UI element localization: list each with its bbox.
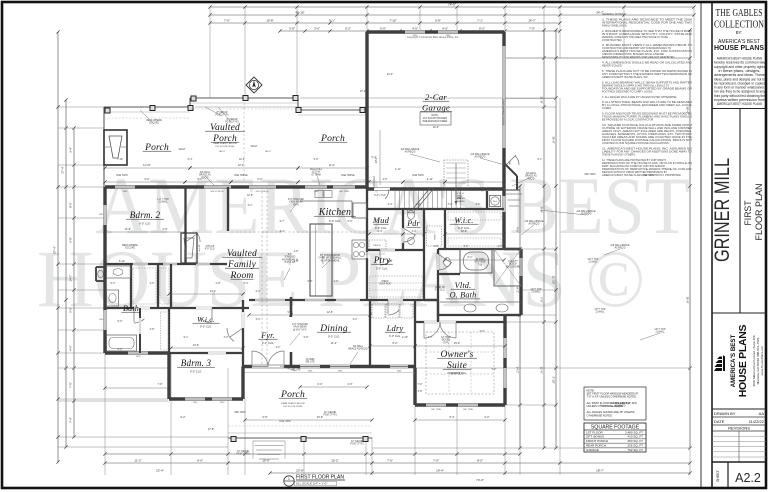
svg-text:6'-0": 6'-0" — [308, 280, 313, 283]
svg-text:5/4 WALL: 5/4 WALL — [353, 345, 364, 348]
svg-text:10′x8′ GARAGE DOORS: 10′x8′ GARAGE DOORS — [502, 99, 505, 126]
svg-text:Porch: Porch — [280, 390, 305, 400]
svg-text:12″ CELME: 12″ CELME — [237, 451, 249, 453]
svg-text:9′-0″ CLG.: 9′-0″ CLG. — [435, 290, 446, 292]
svg-text:42″ FP: 42″ FP — [198, 245, 200, 252]
svg-text:Porch: Porch — [144, 143, 169, 153]
svg-text:4'-8": 4'-8" — [294, 250, 299, 253]
svg-text:OVER 36″ SIDEWALL: OVER 36″ SIDEWALL — [319, 257, 342, 260]
svg-text:74′-0″: 74′-0″ — [476, 478, 484, 482]
svg-text:DIAG PULL: DIAG PULL — [310, 168, 323, 171]
svg-text:48″ COUNTERTOP: 48″ COUNTERTOP — [320, 255, 340, 257]
svg-text:9'-0" CLG.: 9'-0" CLG. — [200, 325, 212, 329]
svg-text:11'-6": 11'-6" — [125, 228, 131, 231]
svg-text:19′-0″: 19′-0″ — [685, 296, 689, 303]
svg-text:9′-0″ STACKED: 9′-0″ STACKED — [288, 198, 304, 201]
svg-text:2x6 WALL: 2x6 WALL — [526, 172, 537, 175]
svg-text:19′-4″: 19′-4″ — [436, 468, 444, 472]
svg-text:5'-0": 5'-0" — [118, 320, 123, 323]
svg-text:11 WALL: 11 WALL — [595, 311, 605, 314]
svg-text:CONSTRUCTED.: CONSTRUCTED. — [602, 38, 623, 42]
svg-text:UP 7′ TOP: UP 7′ TOP — [655, 329, 666, 331]
svg-text:TUB: TUB — [478, 264, 483, 266]
svg-text:3′-8″: 3′-8″ — [289, 26, 295, 30]
svg-text:AS REQ′D: AS REQ′D — [615, 405, 626, 408]
svg-text:6'-1": 6'-1" — [468, 256, 473, 259]
svg-text:BRACE AS REQ′D: BRACE AS REQ′D — [348, 348, 368, 351]
svg-text:11 WALL: 11 WALL — [588, 261, 598, 264]
svg-text:AS REQ′D: AS REQ′D — [529, 223, 540, 226]
svg-text:11'-4": 11'-4" — [331, 342, 337, 345]
svg-text:BLOCK: BLOCK — [509, 264, 517, 266]
svg-text:2x6 WALL BRACE: 2x6 WALL BRACE — [577, 210, 596, 213]
svg-text:57′-4″: 57′-4″ — [53, 246, 57, 254]
svg-text:3'-8": 3'-8" — [334, 280, 339, 283]
svg-text:AMERICA'S BEST: AMERICA'S BEST — [730, 334, 737, 387]
svg-text:FAMILY DWELLINGS.: FAMILY DWELLINGS. — [602, 23, 628, 27]
svg-text:15'-0": 15'-0" — [454, 342, 460, 345]
svg-text:3'-0": 3'-0" — [448, 203, 453, 206]
svg-text:OCCURS: OCCURS — [149, 123, 159, 125]
svg-text:(TYP.): (TYP.) — [443, 342, 450, 344]
svg-text:14′-2″: 14′-2″ — [515, 366, 519, 373]
svg-text:6'-2": 6'-2" — [258, 178, 263, 181]
svg-text:7′-5″: 7′-5″ — [529, 26, 535, 30]
svg-text:FOOTINGS DESIGNED TO CARRY LOA: FOOTINGS DESIGNED TO CARRY LOADS. — [602, 89, 653, 93]
svg-text:21'-4": 21'-4" — [433, 126, 439, 129]
svg-text:8′-6″: 8′-6″ — [69, 202, 73, 208]
svg-text:2x6 WALL: 2x6 WALL — [200, 171, 211, 174]
svg-text:22′-4″: 22′-4″ — [156, 468, 164, 472]
svg-text:A2.2: A2.2 — [735, 471, 761, 485]
svg-text:9′-0″ CLG.: 9′-0″ CLG. — [205, 249, 216, 251]
svg-text:9'-2": 9'-2" — [181, 416, 186, 419]
svg-text:18′-7″: 18′-7″ — [596, 468, 604, 472]
svg-text:9′-0″: 9′-0″ — [288, 254, 293, 256]
svg-text:AMERICA'S BEST HOUSE PLANS: AMERICA'S BEST HOUSE PLANS — [717, 102, 763, 106]
svg-text:REQ′D: REQ′D — [201, 177, 208, 179]
svg-text:9'-0" CLG.: 9'-0" CLG. — [376, 266, 388, 270]
svg-text:REVISIONS: REVISIONS — [728, 426, 750, 431]
svg-text:2'-2": 2'-2" — [416, 203, 421, 206]
svg-text:4'-2": 4'-2" — [276, 346, 281, 349]
svg-text:POST (TYP.): POST (TYP.) — [215, 115, 228, 117]
svg-text:AS REQ′D: AS REQ′D — [615, 247, 626, 250]
svg-text:6'-6": 6'-6" — [480, 330, 485, 333]
svg-text:12″ HIGH: 12″ HIGH — [441, 337, 451, 339]
svg-text:DBL TWIN: DBL TWIN — [339, 191, 349, 193]
svg-text:10′-2″: 10′-2″ — [331, 458, 338, 462]
svg-text:1ST FLOOR TRUSSES: 1ST FLOOR TRUSSES — [423, 118, 448, 120]
svg-text:Porch: Porch — [320, 134, 345, 144]
svg-text:OVER ROD: OVER ROD — [379, 284, 392, 286]
svg-text:9'-0" CLG.: 9'-0" CLG. — [139, 221, 151, 225]
svg-text:WALL: WALL — [457, 195, 464, 198]
svg-text:Fyr.: Fyr. — [260, 331, 274, 340]
svg-text:13'-6": 13'-6" — [193, 344, 199, 347]
svg-text:BEDS WHERE: BEDS WHERE — [122, 245, 138, 247]
svg-text:2'-6": 2'-6" — [498, 245, 503, 248]
svg-text:14′-7″: 14′-7″ — [69, 274, 73, 281]
svg-text:3'-1": 3'-1" — [248, 204, 253, 207]
svg-text:23′-8″: 23′-8″ — [296, 468, 304, 472]
svg-text:DECK WHERE: DECK WHERE — [146, 120, 162, 122]
svg-text:W.H.: W.H. — [493, 201, 498, 203]
svg-text:4′-0″: 4′-0″ — [69, 345, 73, 351]
svg-text:8′-2″: 8′-2″ — [515, 287, 519, 293]
svg-text:VAULT: VAULT — [219, 150, 226, 153]
svg-text:POST (TYP.): POST (TYP.) — [236, 454, 249, 456]
svg-text:ALL WALL BRACE: ALL WALL BRACE — [610, 402, 630, 405]
svg-text:FULL HT: FULL HT — [508, 261, 518, 263]
svg-text:1ST FLOOR: 1ST FLOOR — [586, 430, 603, 434]
svg-text:9′-1″: 9′-1″ — [329, 18, 335, 22]
svg-text:2,480 SQ. FT: 2,480 SQ. FT — [625, 430, 643, 434]
svg-text:2'-10": 2'-10" — [402, 336, 408, 339]
svg-text:9'-7": 9'-7" — [280, 220, 285, 223]
svg-text:BE PROVIDED BY A LOCAL CONTRAC: BE PROVIDED BY A LOCAL CONTRACTOR. — [602, 118, 654, 122]
svg-text:REAR PORCH: REAR PORCH — [586, 444, 606, 448]
svg-text:4'-0": 4'-0" — [348, 383, 353, 386]
svg-text:DBL TWIN: DBL TWIN — [585, 174, 596, 176]
svg-text:L.O. 7 TOP: L.O. 7 TOP — [157, 199, 169, 201]
svg-text:2x6 WALL BRACE: 2x6 WALL BRACE — [525, 220, 544, 223]
svg-text:POST (TYP.): POST (TYP.) — [323, 415, 336, 417]
svg-text:SHEET: SHEET — [716, 469, 720, 482]
svg-text:DBL TWIN: DBL TWIN — [431, 409, 441, 411]
svg-text:5'-0": 5'-0" — [348, 220, 353, 223]
svg-text:REAR SLAB 8″ BELOW: REAR SLAB 8″ BELOW — [213, 142, 237, 145]
svg-text:3'-6": 3'-6" — [150, 282, 155, 285]
svg-text:O. Bath: O. Bath — [450, 291, 477, 300]
svg-text:Suite: Suite — [447, 361, 467, 371]
svg-text:DAE TWIN: DAE TWIN — [412, 174, 424, 177]
svg-text:FLOOR PLAN: FLOOR PLAN — [754, 183, 765, 240]
svg-text:NOTE:: NOTE: — [431, 115, 438, 117]
svg-text:HOUSE PLANS: HOUSE PLANS — [714, 43, 764, 52]
svg-text:COUNTED IN OUR SQUARE FOOTAGE: COUNTED IN OUR SQUARE FOOTAGE CALCULATIO… — [602, 141, 670, 145]
svg-text:OTHERWISE NOTED.: OTHERWISE NOTED. — [587, 413, 613, 417]
svg-text:11 WALL: 11 WALL — [655, 331, 665, 334]
svg-text:5′-8″: 5′-8″ — [435, 18, 441, 22]
svg-text:ENCLOSURE: ENCLOSURE — [506, 266, 521, 268]
svg-text:2'-8": 2'-8" — [434, 245, 439, 248]
svg-text:DAE TRIPLE: DAE TRIPLE — [341, 174, 355, 177]
svg-text:6'-0": 6'-0" — [318, 383, 323, 386]
svg-text:5′-0″: 5′-0″ — [380, 26, 386, 30]
svg-text:Vaulted: Vaulted — [210, 123, 240, 133]
svg-text:SDL3 TRIPLE: SDL3 TRIPLE — [210, 191, 224, 193]
svg-text:UP 7′ TOP: UP 7′ TOP — [588, 259, 599, 261]
svg-text:6′-8″: 6′-8″ — [69, 237, 73, 243]
svg-text:13'-4": 13'-4" — [210, 290, 216, 293]
svg-text:FAUX BEAM: FAUX BEAM — [289, 201, 302, 204]
svg-text:3'-9": 3'-9" — [224, 336, 229, 339]
svg-text:10'-8": 10'-8" — [461, 230, 467, 233]
svg-text:5'-8": 5'-8" — [304, 336, 309, 339]
svg-text:4'-4": 4'-4" — [280, 230, 285, 233]
svg-text:27′-4″: 27′-4″ — [61, 166, 65, 173]
svg-text:AS REQ′D: AS REQ′D — [581, 213, 592, 216]
svg-text:3'-8": 3'-8" — [418, 390, 423, 393]
svg-text:11'-0": 11'-0" — [329, 164, 335, 167]
svg-text:STAIRS: STAIRS — [457, 200, 465, 203]
svg-text:GRINER MILL: GRINER MILL — [711, 158, 734, 262]
svg-text:48′-10″: 48′-10″ — [295, 10, 304, 14]
svg-text:POST (TYP.): POST (TYP.) — [350, 444, 363, 446]
svg-text:9'-0" CLG.: 9'-0" CLG. — [389, 334, 401, 338]
svg-text:2'-8": 2'-8" — [163, 228, 168, 231]
svg-text:UP 7′ TOP: UP 7′ TOP — [531, 289, 542, 291]
svg-text:CODES.: CODES. — [602, 106, 612, 110]
svg-text:GARAGE: GARAGE — [586, 448, 599, 452]
svg-text:COFFERED CLG.: COFFERED CLG. — [447, 372, 467, 375]
svg-text:23'-4": 23'-4" — [375, 157, 378, 163]
svg-text:702 SQ. FT: 702 SQ. FT — [627, 448, 643, 452]
svg-text:Garage: Garage — [422, 102, 450, 112]
svg-text:PRE-MANUFACTURED: PRE-MANUFACTURED — [423, 120, 448, 123]
svg-text:7'-10": 7'-10" — [117, 158, 123, 161]
svg-text:AS REQ′D: AS REQ′D — [405, 151, 416, 154]
svg-text:FIRST FLOOR PLAN: FIRST FLOOR PLAN — [296, 474, 344, 480]
svg-text:ALL SCALE 1/4″ = 1′-0″: ALL SCALE 1/4″ = 1′-0″ — [296, 482, 327, 486]
svg-text:DAE TRIPLE: DAE TRIPLE — [234, 174, 248, 177]
svg-text:(2) 3080: (2) 3080 — [306, 359, 315, 361]
svg-text:UP 7′ TOP: UP 7′ TOP — [595, 309, 606, 311]
svg-text:7'-0": 7'-0" — [418, 383, 423, 386]
svg-text:6'-4": 6'-4" — [188, 158, 193, 161]
svg-text:7′-9″: 7′-9″ — [69, 382, 73, 388]
svg-text:5'-4": 5'-4" — [244, 282, 249, 285]
svg-text:9'-0" CLG.: 9'-0" CLG. — [328, 335, 340, 339]
svg-text:S/B LITE: S/B LITE — [305, 362, 315, 364]
svg-text:BY A LOCAL STRUCTURAL ENGINEER: BY A LOCAL STRUCTURAL ENGINEER AND MEET … — [602, 103, 693, 107]
svg-text:5'-10": 5'-10" — [119, 260, 125, 263]
svg-text:FRONT PORCH: FRONT PORCH — [586, 439, 608, 443]
svg-text:3′-6″: 3′-6″ — [314, 26, 320, 30]
svg-text:7′-10″: 7′-10″ — [389, 18, 396, 22]
svg-text:11/22/22: 11/22/22 — [749, 419, 765, 424]
svg-text:STORAGE: STORAGE — [474, 261, 486, 264]
svg-text:5'-1": 5'-1" — [184, 336, 189, 339]
svg-text:74′-0″: 74′-0″ — [448, 2, 457, 6]
svg-text:5'-1": 5'-1" — [198, 178, 203, 181]
svg-text:9'-0" CLG.: 9'-0" CLG. — [190, 369, 202, 373]
svg-text:3′-4″: 3′-4″ — [69, 147, 73, 153]
svg-text:7′-0″: 7′-0″ — [224, 18, 230, 22]
svg-text:7′-0″: 7′-0″ — [433, 458, 439, 462]
svg-text:10'-8": 10'-8" — [317, 416, 323, 419]
svg-text:3′-10″: 3′-10″ — [551, 376, 555, 383]
svg-text:8'-1": 8'-1" — [538, 158, 543, 161]
svg-text:REQ′D: REQ′D — [527, 178, 534, 180]
svg-text:LINEN: LINEN — [433, 234, 435, 240]
svg-text:SHELF: SHELF — [381, 281, 389, 283]
svg-text:GENERAL NOTES:: GENERAL NOTES: — [602, 12, 625, 16]
svg-text:5′-2″: 5′-2″ — [345, 26, 351, 30]
svg-text:Vaulted: Vaulted — [227, 249, 257, 259]
svg-text:6′-0″ x 6′-8″: 6′-0″ x 6′-8″ — [374, 195, 386, 197]
svg-text:3'-2": 3'-2" — [412, 230, 417, 233]
svg-text:9'-0" CLG.: 9'-0" CLG. — [329, 219, 341, 223]
svg-text:HOUSE PLANS: HOUSE PLANS — [737, 324, 749, 397]
svg-text:W/ OP CHEMENE: W/ OP CHEMENE — [321, 260, 340, 262]
svg-text:7'-8": 7'-8" — [158, 383, 163, 386]
svg-text:Copyright © American Best Hous: Copyright © American Best House Plans, I… — [407, 35, 460, 39]
svg-text:36′-0″: 36′-0″ — [551, 136, 555, 143]
svg-text:1ST FLOOR LEVEL: 1ST FLOOR LEVEL — [215, 146, 235, 148]
svg-text:9′-6″: 9′-6″ — [197, 458, 203, 462]
svg-text:LOAD OF: LOAD OF — [435, 286, 446, 289]
svg-text:2x6 WALL BRACE: 2x6 WALL BRACE — [611, 244, 630, 247]
svg-text:3'-2": 3'-2" — [353, 318, 358, 321]
svg-text:Bath: Bath — [123, 304, 139, 313]
svg-text:27'-4": 27'-4" — [360, 90, 366, 93]
svg-text:Owner's: Owner's — [441, 350, 474, 360]
svg-text:W.i.c.: W.i.c. — [455, 216, 474, 225]
svg-text:CHS CP: CHS CP — [206, 246, 215, 248]
svg-text:OCCURS: OCCURS — [125, 248, 135, 250]
svg-text:12″ CELME: 12″ CELME — [324, 412, 336, 414]
svg-text:1ST FLOOR LEVEL: 1ST FLOOR LEVEL — [283, 406, 303, 408]
svg-text:253 SQ. FT: 253 SQ. FT — [627, 439, 643, 443]
svg-text:12'-2": 12'-2" — [238, 164, 244, 167]
svg-text:VAULT: VAULT — [265, 150, 272, 153]
svg-text:6'-8": 6'-8" — [263, 416, 268, 419]
svg-text:THESE PLANS BY OTHERS.: THESE PLANS BY OTHERS. — [602, 152, 636, 156]
svg-text:5'-2": 5'-2" — [492, 368, 497, 371]
svg-text:5'-9": 5'-9" — [464, 245, 469, 248]
svg-text:DAE TWIN: DAE TWIN — [642, 174, 654, 177]
svg-text:2'-0": 2'-0" — [294, 260, 299, 263]
svg-text:4'-1": 4'-1" — [256, 290, 261, 293]
svg-text:DATE: DATE — [714, 419, 725, 424]
svg-text:256 SQ. FT: 256 SQ. FT — [627, 444, 643, 448]
svg-text:4'-0": 4'-0" — [428, 336, 433, 339]
svg-text:5'-5": 5'-5" — [388, 260, 393, 263]
svg-text:Dining: Dining — [319, 324, 348, 334]
svg-text:4'-0": 4'-0" — [383, 178, 388, 181]
svg-text:DAE TWIN: DAE TWIN — [279, 420, 291, 423]
svg-text:COLLECTION: COLLECTION — [714, 20, 764, 31]
svg-text:5'-8": 5'-8" — [288, 311, 293, 314]
svg-text:FIRST: FIRST — [743, 200, 754, 225]
svg-text:RESPONSIBILITY FOR ERRORS THAT: RESPONSIBILITY FOR ERRORS THAT ARE NOT R… — [602, 55, 675, 59]
svg-text:4′-5″: 4′-5″ — [412, 26, 418, 30]
svg-text:21′-8″: 21′-8″ — [539, 96, 543, 103]
svg-text:12'-2": 12'-2" — [239, 158, 245, 161]
svg-text:7′-6″: 7′-6″ — [387, 458, 393, 462]
svg-text:BRACE AS: BRACE AS — [525, 175, 537, 178]
svg-text:7′-1″: 7′-1″ — [477, 18, 483, 22]
svg-text:REAR SLAB 8″ BELOW: REAR SLAB 8″ BELOW — [281, 402, 305, 405]
svg-text:AA: AA — [759, 411, 765, 416]
svg-text:OPT. BONUS: OPT. BONUS — [586, 435, 604, 439]
svg-text:@ 8′-0″ A.F.F.: @ 8′-0″ A.F.F. — [293, 328, 307, 331]
svg-text:POST (TYP.): POST (TYP.) — [225, 122, 238, 124]
svg-text:VAULT: VAULT — [250, 145, 258, 148]
svg-text:14'-10": 14'-10" — [143, 164, 151, 167]
svg-text:7′-0″: 7′-0″ — [539, 297, 543, 303]
svg-text:14′-7″: 14′-7″ — [528, 18, 535, 22]
svg-text:7'-0" A.F.F. UNLESS OTHERWISE: 7'-0" A.F.F. UNLESS OTHERWISE NOTED. — [587, 395, 638, 399]
svg-text:6′-2″: 6′-2″ — [479, 26, 485, 30]
svg-text:6'-2": 6'-2" — [118, 348, 123, 351]
svg-text:GT TRIM: GT TRIM — [311, 174, 320, 176]
svg-text:4'-11": 4'-11" — [395, 168, 401, 171]
svg-text:(TYP.): (TYP.) — [293, 204, 300, 206]
svg-text:VAULT: VAULT — [178, 148, 186, 151]
svg-text:11′-10″: 11′-10″ — [551, 276, 555, 285]
svg-text:12″ CELME: 12″ CELME — [351, 441, 363, 443]
svg-text:NEVER SCALED.: NEVER SCALED. — [602, 64, 623, 68]
svg-text:DAE TWIN: DAE TWIN — [377, 366, 389, 369]
svg-text:(2) 3080: (2) 3080 — [292, 367, 301, 369]
svg-text:6'-4": 6'-4" — [378, 230, 383, 233]
svg-text:FAUX BEAM: FAUX BEAM — [293, 326, 306, 329]
svg-text:10′-8″: 10′-8″ — [266, 18, 273, 22]
svg-text:34′-7″: 34′-7″ — [596, 10, 604, 14]
svg-text:6'-0": 6'-0" — [145, 178, 150, 181]
svg-text:www.HousePlans.net: www.HousePlans.net — [760, 346, 764, 375]
svg-text:38′-4″: 38′-4″ — [685, 106, 689, 113]
svg-text:STACKED: STACKED — [285, 256, 296, 259]
svg-text:17'-8": 17'-8" — [208, 428, 214, 431]
svg-text:DRAWN BY: DRAWN BY — [714, 411, 736, 416]
svg-text:3rd WALL BRACE: 3rd WALL BRACE — [401, 148, 420, 151]
svg-text:DAE TWIN: DAE TWIN — [116, 174, 128, 177]
svg-text:6′-0″: 6′-0″ — [515, 227, 519, 233]
svg-text:7′-4″: 7′-4″ — [69, 417, 73, 423]
svg-text:Bdrm. 2: Bdrm. 2 — [130, 210, 161, 220]
svg-text:BOXED: BOXED — [442, 340, 450, 342]
svg-text:12′-6″: 12′-6″ — [539, 366, 543, 373]
svg-text:DBL TWIN: DBL TWIN — [463, 409, 473, 411]
svg-text:THE GABLES: THE GABLES — [716, 8, 763, 19]
svg-text:23'-4": 23'-4" — [387, 73, 393, 76]
svg-text:AT FWD: AT FWD — [476, 258, 485, 261]
svg-text:2x6 WALL BRACE: 2x6 WALL BRACE — [471, 153, 490, 156]
svg-text:DBL TWIN: DBL TWIN — [235, 412, 246, 414]
svg-text:Ldry: Ldry — [386, 323, 404, 333]
svg-text:Mud: Mud — [372, 215, 390, 225]
svg-text:Room: Room — [230, 271, 254, 281]
svg-text:2-Car: 2-Car — [425, 92, 447, 102]
svg-text:Family: Family — [227, 260, 257, 270]
svg-text:4'-6": 4'-6" — [476, 203, 481, 206]
svg-text:8′-0″: 8′-0″ — [477, 458, 483, 462]
svg-text:4'-11": 4'-11" — [427, 178, 433, 181]
svg-text:2'-8": 2'-8" — [216, 282, 221, 285]
svg-text:3'-0": 3'-0" — [256, 318, 261, 321]
svg-text:SDL3 TRIPLE: SDL3 TRIPLE — [255, 191, 269, 193]
svg-text:W.i.c.: W.i.c. — [197, 315, 215, 324]
svg-text:Vltd.: Vltd. — [455, 281, 472, 290]
svg-text:11′-2″: 11′-2″ — [134, 458, 141, 462]
svg-text:BENCH: BENCH — [373, 245, 381, 247]
svg-text:Bdrm. 3: Bdrm. 3 — [181, 358, 212, 368]
svg-text:5'-0": 5'-0" — [111, 282, 116, 285]
svg-text:9'-0" CLG.: 9'-0" CLG. — [262, 341, 274, 345]
svg-text:9′-0″ STACKED: 9′-0″ STACKED — [292, 323, 308, 326]
svg-text:1: 1 — [288, 477, 290, 481]
svg-text:12'-6": 12'-6" — [327, 311, 333, 314]
svg-text:9'-0": 9'-0" — [314, 158, 319, 161]
svg-text:3'-4": 3'-4" — [388, 203, 393, 206]
svg-text:419 SQ. FT: 419 SQ. FT — [627, 435, 643, 439]
svg-text:AMERICA'S BEST HOUSE PLANS, IN: AMERICA'S BEST HOUSE PLANS, INC. — [602, 75, 649, 79]
svg-text:7. ALL ANGLED WALLS ARE 45° U: 7. ALL ANGLED WALLS ARE 45° UNLESS NOTED… — [602, 95, 677, 99]
